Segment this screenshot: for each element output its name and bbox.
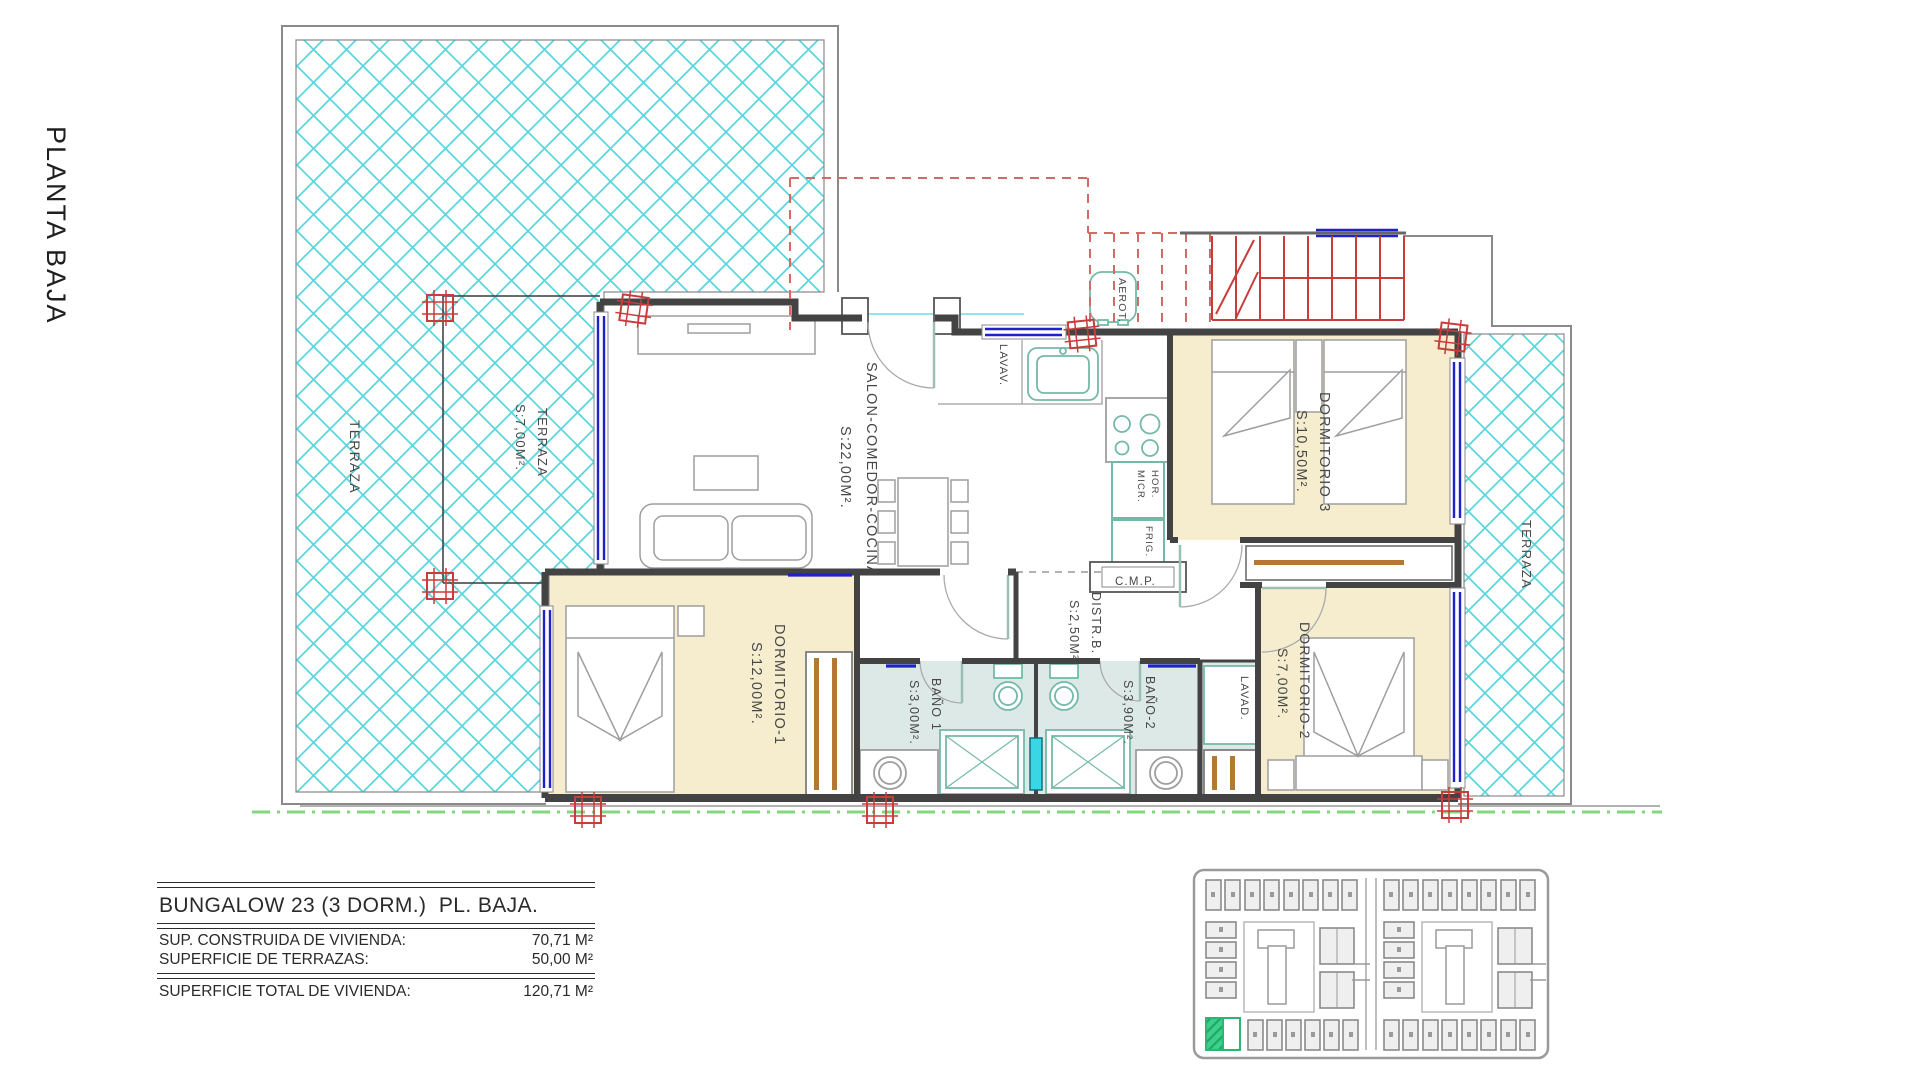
info-value: 50,00 M² xyxy=(532,951,593,970)
tv-cabinet xyxy=(638,316,815,354)
sink-bano1-basin xyxy=(879,762,901,784)
info-value: 120,71 M² xyxy=(523,983,593,1001)
dining-chair xyxy=(878,511,895,533)
window-bathroom-cyan xyxy=(1030,738,1042,790)
sink-bano2-basin xyxy=(1155,762,1177,784)
kitchen-tap xyxy=(1060,348,1066,354)
dining-chair xyxy=(951,511,968,533)
nightstand xyxy=(678,606,704,636)
stairs xyxy=(1212,236,1404,320)
sofa-cushion xyxy=(654,516,728,560)
fridge-unit xyxy=(1112,520,1164,564)
label-aerotermia: AEROT. xyxy=(1116,278,1128,323)
dining-table xyxy=(898,478,948,566)
burner xyxy=(1116,442,1129,455)
info-row: SUP. CONSTRUIDA DE VIVIENDA: 70,71 M² xyxy=(159,932,593,951)
dining-chair xyxy=(951,480,968,502)
pool xyxy=(1446,946,1464,1004)
label-dorm2: DORMITORIO-2 xyxy=(1297,622,1313,740)
label-bano2-area: S:3,90M². xyxy=(1121,680,1135,745)
info-value: 70,71 M² xyxy=(532,932,593,951)
plan-title: BUNGALOW 23 (3 DORM.) PL. BAJA. xyxy=(157,888,595,923)
wardrobe-dorm1 xyxy=(806,652,852,796)
dining-chair xyxy=(951,542,968,564)
wardrobe-door xyxy=(1212,756,1217,790)
wardrobe-door xyxy=(1254,560,1404,565)
label-lavadora: LAVAD. xyxy=(1238,676,1250,721)
wardrobe-door xyxy=(814,658,819,790)
dorm1-door-arc xyxy=(944,575,1008,639)
label-distribuidor-area: S:2,50M². xyxy=(1067,600,1081,665)
coffee-table xyxy=(694,456,758,490)
info-total-row: SUPERFICIE TOTAL DE VIVIENDA: 120,71 M² xyxy=(157,979,595,1003)
label-horno: HOR. xyxy=(1149,470,1160,499)
toilet-bowl-inner xyxy=(1055,687,1073,705)
pool xyxy=(1268,946,1286,1004)
burner xyxy=(1114,416,1130,432)
label-terraza-right: TERRAZA xyxy=(1519,520,1534,589)
site-unit-highlighted xyxy=(1206,1018,1240,1050)
label-terraza-small-area: S:7,00M². xyxy=(513,404,528,471)
wardrobe-door xyxy=(1230,756,1235,790)
nightstand xyxy=(1268,760,1294,790)
label-bano1-area: S:3,00M². xyxy=(907,680,921,745)
burner xyxy=(1142,440,1158,456)
dining-chair xyxy=(878,542,895,564)
label-dorm1-area: S:12,00M². xyxy=(748,642,764,725)
site-plan-minimap xyxy=(1194,870,1548,1058)
burner xyxy=(1141,415,1160,434)
label-bano1: BAÑO 1 xyxy=(929,678,943,731)
nightstand xyxy=(1422,760,1448,790)
info-table: BUNGALOW 23 (3 DORM.) PL. BAJA. SUP. CON… xyxy=(157,882,595,1003)
label-dorm2-area: S:7,00M². xyxy=(1275,648,1291,720)
wardrobe-door xyxy=(832,658,837,790)
label-cmp: C.M.P. xyxy=(1115,576,1156,588)
stove xyxy=(1106,398,1168,462)
kitchen-sink-basin xyxy=(1037,356,1089,393)
info-label: SUP. CONSTRUIDA DE VIVIENDA: xyxy=(159,932,406,951)
info-label: SUPERFICIE DE TERRAZAS: xyxy=(159,951,369,970)
tv-cabinet-handle xyxy=(688,324,750,333)
floor-plan-sheet: PLANTA BAJA xyxy=(0,0,1920,1080)
label-terraza-small: TERRAZA xyxy=(535,408,550,477)
label-terraza-left: TERRAZA xyxy=(347,420,363,494)
dining-chair xyxy=(878,480,895,502)
bed-dorm2-foot xyxy=(1296,756,1422,790)
aerotermia-foot xyxy=(1098,320,1108,325)
label-salon-area: S:22,00M². xyxy=(837,426,853,509)
label-dorm1: DORMITORIO-1 xyxy=(771,624,787,745)
label-salon: SALON-COMEDOR-COCINA xyxy=(863,362,879,577)
terrace-east-hatch xyxy=(1464,334,1564,796)
sofa-cushion xyxy=(732,516,806,560)
label-frigorifico: FRIG. xyxy=(1143,526,1154,557)
toilet-tank xyxy=(994,664,1022,678)
label-bano2: BAÑO-2 xyxy=(1143,676,1157,730)
toilet-bowl-inner xyxy=(999,687,1017,705)
label-distribuidor: DISTR.B. xyxy=(1089,592,1103,654)
info-row: SUPERFICIE DE TERRAZAS: 50,00 M² xyxy=(159,951,593,970)
label-dorm3: DORMITORIO 3 xyxy=(1316,392,1332,512)
toilet-tank xyxy=(1050,664,1078,678)
dorm3-door-arc xyxy=(1180,545,1242,607)
label-dorm3-area: S:10,50M². xyxy=(1293,410,1309,493)
info-label: SUPERFICIE TOTAL DE VIVIENDA: xyxy=(159,983,411,1001)
label-microondas: MICR. xyxy=(1135,470,1146,503)
label-lavavajillas: LAVAV. xyxy=(997,344,1009,386)
